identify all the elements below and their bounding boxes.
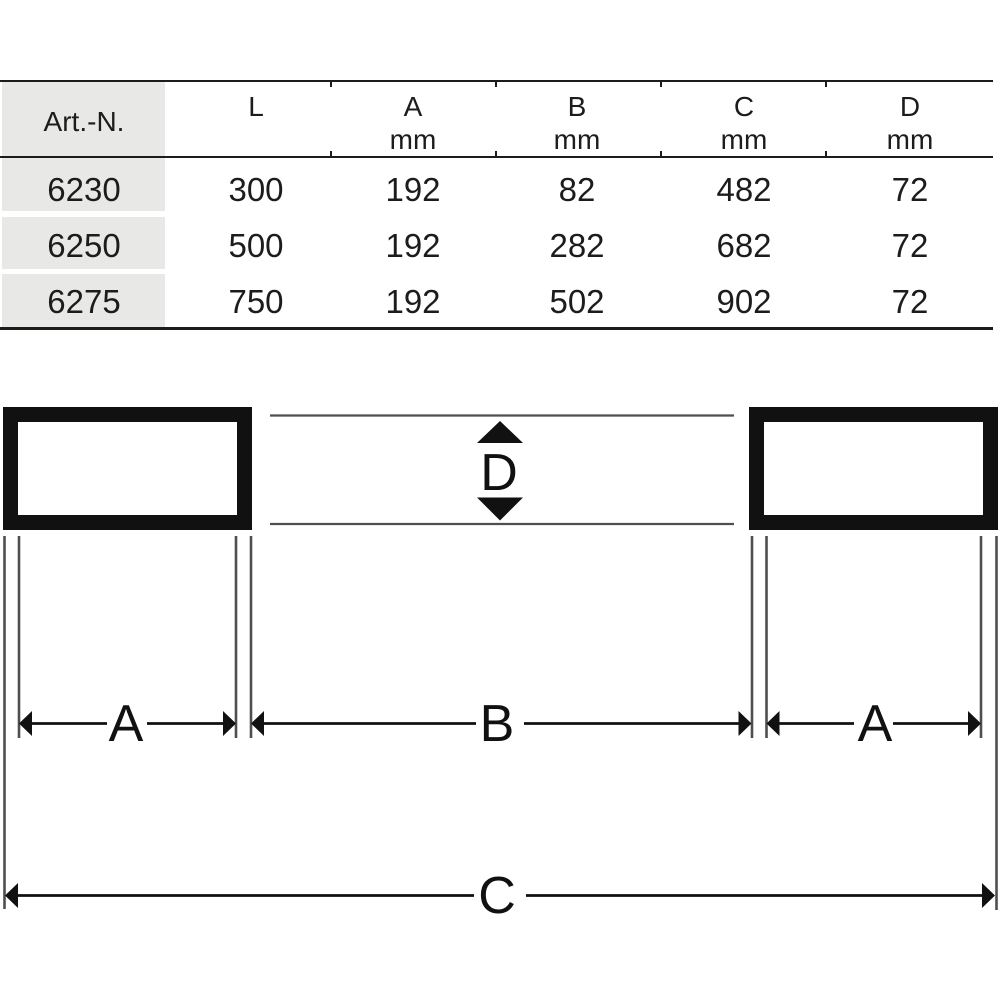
svg-text:B: B (480, 695, 515, 753)
svg-text:A: A (109, 695, 144, 753)
svg-text:A: A (858, 695, 893, 753)
svg-text:D: D (480, 444, 518, 502)
svg-text:C: C (478, 867, 516, 925)
